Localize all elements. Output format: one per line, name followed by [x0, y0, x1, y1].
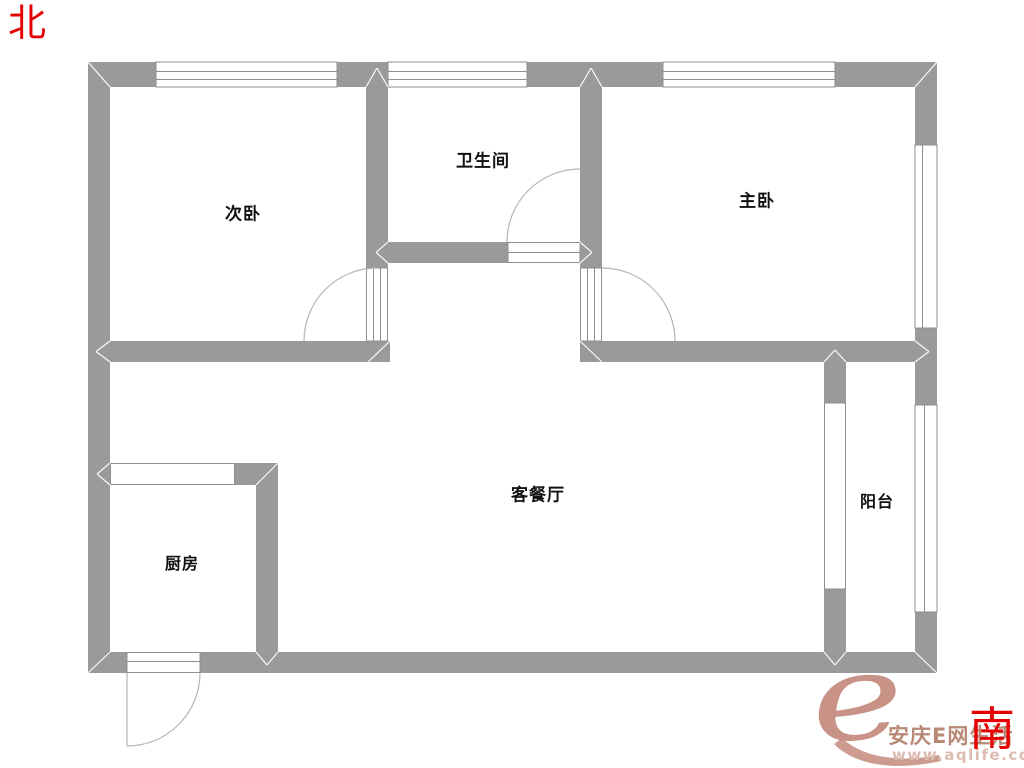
- wall-west: [88, 62, 110, 673]
- door-master-bedroom: [581, 268, 676, 341]
- opening-balcony-sliding-door: [825, 403, 846, 589]
- wall-bathroom-master-divider: [580, 87, 602, 268]
- door-secondary-bedroom: [304, 268, 388, 341]
- window-master-bedroom-east: [915, 145, 937, 328]
- interior-walls: [88, 87, 937, 652]
- opening-kitchen-pass: [111, 464, 235, 485]
- room-label-secondary-bedroom: 次卧: [225, 200, 261, 225]
- door-entry: [127, 653, 200, 747]
- floorplan-page: 次卧 卫生间 主卧 客餐厅 厨房 阳台 北 南 e 安庆E网生活 www.aql…: [0, 0, 1024, 768]
- wall-balcony-divider-upper: [824, 362, 846, 403]
- wall-bathroom-south: [388, 242, 508, 263]
- door-arc-master-bedroom: [602, 268, 675, 341]
- door-arc-bathroom: [507, 169, 580, 242]
- exterior-walls: [88, 62, 937, 673]
- window-master-bedroom-north: [663, 62, 835, 87]
- wall-kitchen-east: [256, 463, 278, 652]
- compass-north-label: 北: [8, 4, 46, 42]
- room-label-bathroom: 卫生间: [456, 147, 510, 172]
- room-label-kitchen: 厨房: [165, 550, 199, 574]
- door-bathroom: [507, 169, 580, 263]
- window-secondary-bedroom-north: [156, 62, 337, 87]
- wall-secondary-bathroom-divider: [366, 87, 388, 268]
- room-label-balcony: 阳台: [860, 488, 894, 512]
- wall-secondary-bedroom-south: [88, 341, 390, 362]
- window-bathroom-north: [388, 62, 527, 87]
- wall-joint-seams: [88, 62, 937, 673]
- wall-master-bedroom-south: [580, 341, 937, 362]
- room-label-living-dining: 客餐厅: [511, 481, 565, 506]
- door-arc-entry: [127, 673, 200, 746]
- window-balcony-east: [915, 405, 937, 612]
- compass-south-label: 南: [969, 706, 1015, 752]
- room-label-master-bedroom: 主卧: [739, 187, 775, 212]
